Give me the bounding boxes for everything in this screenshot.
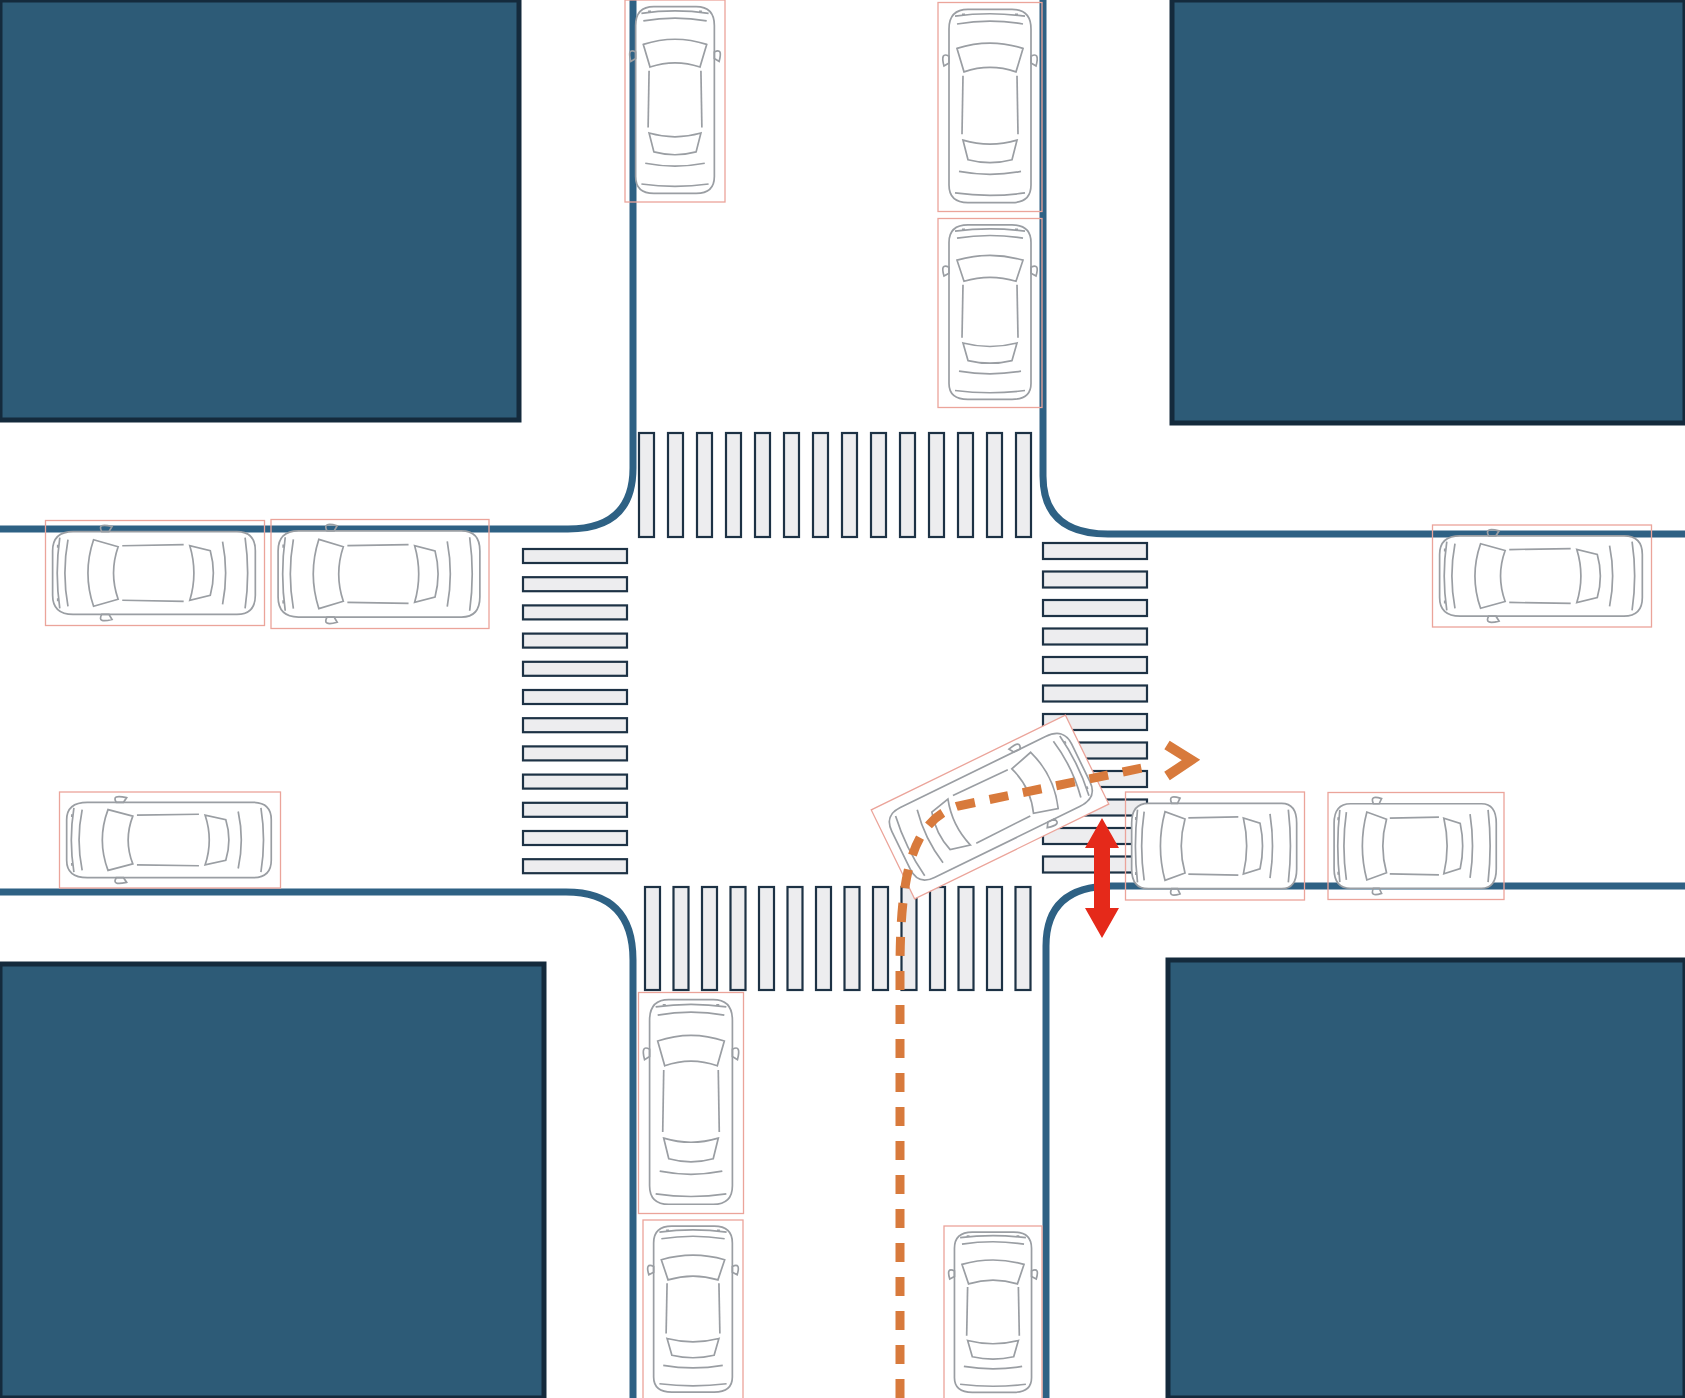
crosswalk-bar [900,433,915,537]
crosswalk-bar [1043,600,1147,616]
crosswalk-bar [987,433,1002,537]
car-body-line [967,1287,968,1336]
vehicle-east-north-lane [1433,525,1652,627]
crosswalk-bar [788,887,803,990]
car-body-line [1018,1287,1019,1336]
crosswalk-bar [1043,629,1147,645]
crosswalk-bar [813,433,828,537]
crosswalk-bar [959,887,974,990]
car-body-line [701,71,702,128]
crosswalk-bar [871,433,886,537]
city-block-southwest [0,964,544,1398]
crosswalk-bar [523,662,627,676]
crosswalk-bar [523,775,627,789]
vehicle-west-north-lane-1 [46,521,265,626]
crosswalk-bar [523,746,627,760]
crosswalk-bar [816,887,831,990]
car-body-line [663,1070,664,1132]
vehicle-west-north-lane-2 [271,520,489,629]
crosswalk-bar [697,433,712,537]
crosswalk-bar [759,887,774,990]
city-block-northeast [1172,0,1685,423]
car-body-line [718,1070,719,1132]
car-body-line [1390,817,1439,818]
vehicle-south-east-lane [944,1226,1042,1398]
car-body-line [1017,76,1018,135]
crosswalk-bar [523,634,627,648]
crosswalk-bar [523,831,627,845]
crosswalk-bar [845,887,860,990]
crosswalk-bar [726,433,741,537]
crosswalk-bar [523,605,627,619]
car-body-line [666,1283,667,1333]
vehicle-north-east-lane-1 [938,3,1042,212]
crosswalk-bar [1043,543,1147,559]
vehicle-north-west-lane [625,0,725,202]
city-block-southeast [1168,960,1685,1398]
intersection-diagram [0,0,1685,1398]
car-body-line [1509,549,1570,550]
crosswalk-bar [1016,887,1031,990]
car-body-line [962,76,963,135]
crosswalk-bar [523,690,627,704]
crosswalk-bar [958,433,973,537]
crosswalk-bar [523,718,627,732]
crosswalk-bar [523,859,627,873]
crosswalk-bar [674,887,689,990]
car-body-line [137,814,199,815]
crosswalk-bar [755,433,770,537]
crosswalk-bar [1043,657,1147,673]
crosswalk-bar [645,887,660,990]
car-body-line [1188,817,1238,818]
crosswalk-bar [702,887,717,990]
crosswalk-bar [668,433,683,537]
crosswalk-bar [1043,686,1147,702]
car-body-line [122,600,183,601]
vehicle-east-south-lane-1 [1126,792,1305,900]
crosswalk-bar [523,803,627,817]
city-block-northwest [0,0,519,420]
car-body-line [1509,602,1570,603]
crosswalk-bar [1043,572,1147,588]
vehicle-south-west-lane-2 [643,1220,743,1398]
car-body-line [962,285,963,338]
car-body-line [648,71,649,128]
crosswalk-bar [731,887,746,990]
intersection-scene [0,0,1685,1398]
crosswalk-bar [842,433,857,537]
crosswalk-bar [1016,433,1031,537]
car-body-line [347,545,408,546]
crosswalk-bar [639,433,654,537]
car-body-line [1188,874,1238,875]
car-body-line [719,1283,720,1333]
crosswalk-bar [523,549,627,563]
car-body-line [1017,285,1018,338]
vehicle-north-east-lane-2 [938,219,1042,408]
crosswalk-bar [523,577,627,591]
car-body-line [122,545,183,546]
crosswalk-bar [929,433,944,537]
crosswalk-bar [784,433,799,537]
car-body-line [137,865,199,866]
car-body-line [347,602,408,603]
crosswalk-bar [873,887,888,990]
car-body-line [1390,874,1439,875]
vehicle-south-west-lane-1 [639,993,744,1214]
vehicle-east-south-lane-2 [1328,793,1504,900]
crosswalk-bar [987,887,1002,990]
vehicle-west-south-lane [60,792,281,888]
crosswalk-bar [930,887,945,990]
